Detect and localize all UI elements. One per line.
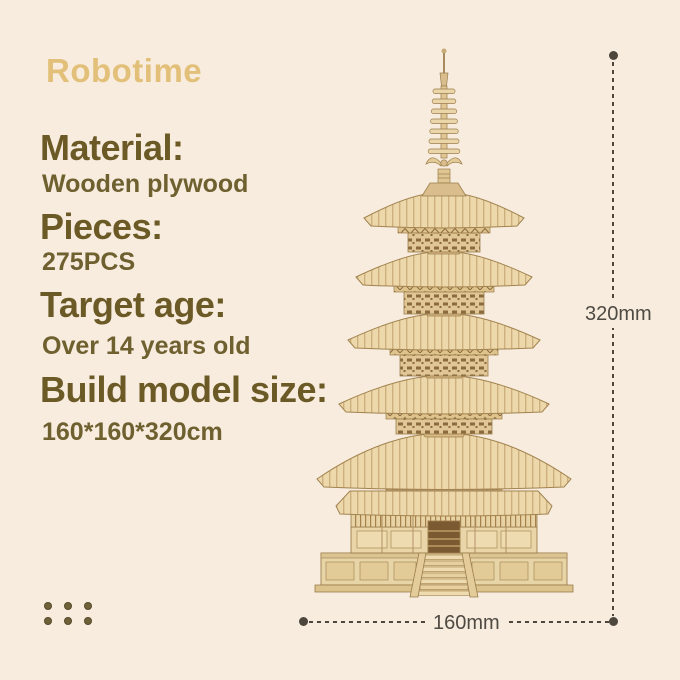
build-size-value: 160*160*320cm <box>42 420 223 445</box>
width-dimension-label: 160mm <box>425 611 508 635</box>
height-dimension-line <box>612 62 614 616</box>
dot-decoration <box>44 617 52 625</box>
dot-decoration <box>64 617 72 625</box>
material-value: Wooden plywood <box>42 172 248 197</box>
pagoda-story-2 <box>386 412 502 434</box>
pagoda-spire <box>422 49 466 197</box>
target-age-value: Over 14 years old <box>42 334 250 359</box>
pagoda-ground-floor <box>351 514 537 553</box>
product-infographic: Robotime Material: Wooden plywood Pieces… <box>0 0 680 680</box>
height-dimension-label: 320mm <box>583 300 654 328</box>
width-dimension-left-dot <box>299 617 308 626</box>
dot-decoration <box>84 617 92 625</box>
pagoda-roof-2 <box>339 372 549 414</box>
target-age-label: Target age: <box>40 287 226 323</box>
material-label: Material: <box>40 130 184 166</box>
dot-decoration <box>44 602 52 610</box>
pagoda-roof-1 <box>317 430 571 490</box>
pagoda-doorway <box>428 521 460 553</box>
pieces-label: Pieces: <box>40 209 163 245</box>
pieces-value: 275PCS <box>42 250 135 275</box>
pagoda-roof-3 <box>348 310 540 350</box>
dot-decoration <box>64 602 72 610</box>
pagoda-story-3 <box>390 348 498 376</box>
pagoda-veranda-roof <box>336 491 552 516</box>
brand-logo: Robotime <box>46 52 202 90</box>
dimension-corner-dot <box>609 617 618 626</box>
pagoda-model-image <box>280 45 600 605</box>
height-dimension-top-dot <box>609 51 618 60</box>
dot-decoration <box>84 602 92 610</box>
pagoda-story-4 <box>394 285 494 314</box>
pagoda-roof-4 <box>356 248 532 287</box>
dots-pattern-decoration <box>44 602 92 625</box>
pagoda-story-5 <box>398 226 490 252</box>
